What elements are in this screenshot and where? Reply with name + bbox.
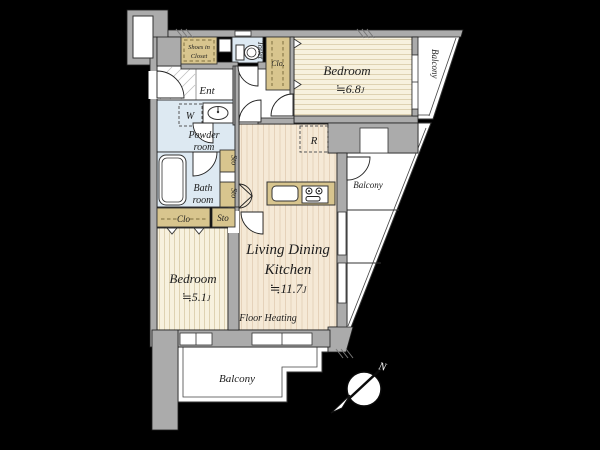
ldk-window-1 xyxy=(338,212,346,255)
shoes-closet-label-1: Shoes in xyxy=(188,44,210,51)
floor-plan-page: Balcony Balcony Balcony xyxy=(0,0,600,450)
balcony-recess xyxy=(360,128,388,153)
compass-circle xyxy=(347,372,381,406)
toilet-label: Toilet xyxy=(256,41,265,60)
balcony-bottom-label: Balcony xyxy=(219,373,255,385)
toilet-icon xyxy=(236,45,260,60)
wall-bedroom-tr-bottom xyxy=(294,116,418,123)
wall-top xyxy=(168,30,463,37)
balcony-right-label: Balcony xyxy=(353,180,383,190)
ldk-window-2 xyxy=(338,263,346,303)
wall-left-column xyxy=(152,330,178,430)
storage-1-label: Sto xyxy=(230,155,239,165)
wall-bedroom-tr-right-a xyxy=(412,37,418,55)
washbasin-icon xyxy=(203,103,233,123)
stove-icon xyxy=(302,186,328,203)
storage-2-label: Sto xyxy=(230,188,239,198)
ldk-name-line2: Kitchen xyxy=(264,262,312,278)
shoes-closet-label-2: Closet xyxy=(191,53,208,60)
powder-room-label-2: room xyxy=(194,142,215,153)
balcony-top-right-label: Balcony xyxy=(430,49,440,79)
bedroom-bl-area: ≒5.1J xyxy=(182,290,211,304)
bedroom-tr-name: Bedroom xyxy=(323,63,370,78)
ldk-area: ≒11.7J xyxy=(270,281,308,296)
elevator-shaft xyxy=(133,16,153,58)
bedroom-tr-area: ≒6.8J xyxy=(336,82,365,96)
bath-room-label-2: room xyxy=(193,195,214,206)
wall-bedroom-tr-right-b xyxy=(412,109,418,116)
floor-plan-svg: Balcony Balcony Balcony xyxy=(0,0,600,450)
kitchen-counter xyxy=(267,182,335,205)
pipe-space-box xyxy=(220,172,235,182)
closet-lower-label: Clo xyxy=(177,214,191,224)
ldk-name-line1: Living Dining xyxy=(245,242,330,258)
bathtub-icon xyxy=(159,155,186,205)
wall-ldk-top xyxy=(258,118,294,124)
wall-bedroom-tr-left xyxy=(290,37,294,94)
floor-heating-label: Floor Heating xyxy=(238,313,297,324)
refrigerator-label: R xyxy=(310,135,318,147)
storage-3-label: Sto xyxy=(217,213,229,223)
powder-room-label-1: Powder xyxy=(187,130,219,141)
toilet-window xyxy=(235,31,251,36)
entrance-label: Ent xyxy=(198,85,215,97)
bath-room-label-1: Bath xyxy=(194,183,213,194)
sink-icon xyxy=(272,186,298,201)
wall-sic-left xyxy=(157,37,181,66)
bedroom-bl-name: Bedroom xyxy=(169,271,216,286)
closet-upper-label: Clo. xyxy=(271,59,285,68)
meter-box xyxy=(219,39,231,52)
